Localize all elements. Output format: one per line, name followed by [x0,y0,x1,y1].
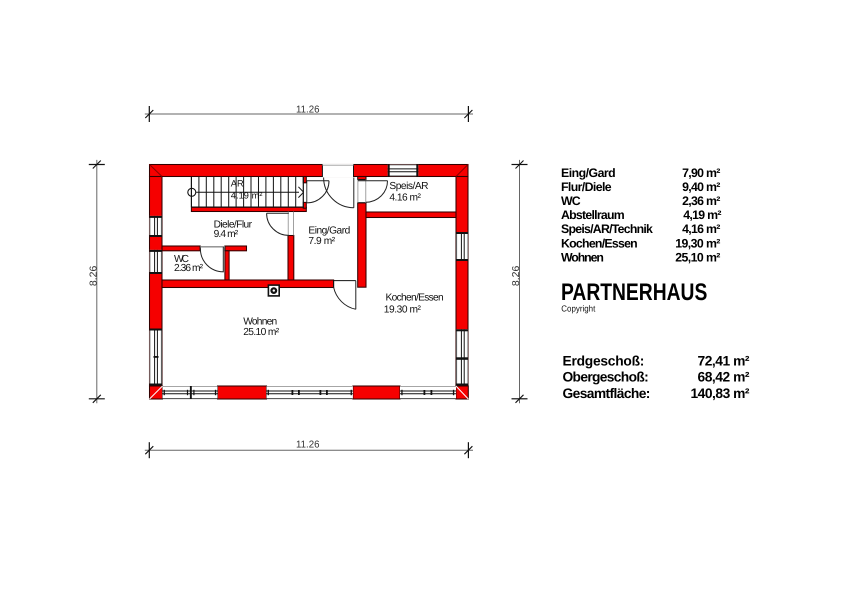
svg-text:Copyright: Copyright [561,303,595,313]
svg-text:72,41 m²: 72,41 m² [698,353,750,368]
svg-text:PARTNERHAUS: PARTNERHAUS [561,279,707,306]
svg-text:11.26: 11.26 [296,104,320,115]
svg-text:4,19 m²: 4,19 m² [683,208,721,222]
svg-text:8.26: 8.26 [88,265,99,286]
svg-text:Kochen/Essen: Kochen/Essen [386,293,444,304]
svg-text:9,40 m²: 9,40 m² [682,180,720,194]
svg-text:2,36 m²: 2,36 m² [682,194,720,208]
svg-text:25,10 m²: 25,10 m² [675,250,720,264]
svg-text:68,42 m²: 68,42 m² [698,370,750,385]
svg-text:WC: WC [561,194,581,208]
svg-text:7,90 m²: 7,90 m² [682,166,720,180]
svg-text:11.26: 11.26 [296,440,320,451]
svg-text:Abstellraum: Abstellraum [561,208,625,222]
svg-text:Kochen/Essen: Kochen/Essen [561,236,638,250]
svg-text:140,83 m²: 140,83 m² [691,386,750,401]
svg-text:Obergeschoß:: Obergeschoß: [563,370,649,385]
svg-text:Eing/Gard: Eing/Gard [308,225,350,236]
svg-text:4.16 m²: 4.16 m² [389,192,421,203]
svg-text:AR: AR [231,179,244,189]
svg-text:4.19 m²: 4.19 m² [231,190,263,200]
svg-text:Flur/Diele: Flur/Diele [561,180,612,194]
svg-text:Speis/AR/Technik: Speis/AR/Technik [561,222,653,236]
svg-text:19.30 m²: 19.30 m² [384,304,422,315]
svg-text:19,30 m²: 19,30 m² [675,236,720,250]
svg-text:7.9 m²: 7.9 m² [308,236,335,247]
svg-text:8.26: 8.26 [511,265,522,286]
svg-text:2.36 m²: 2.36 m² [174,263,204,274]
svg-text:9.4 m²: 9.4 m² [214,229,239,240]
svg-text:Wohnen: Wohnen [561,250,604,264]
svg-text:Speis/AR: Speis/AR [389,181,428,192]
svg-text:Gesamtfläche:: Gesamtfläche: [563,386,651,401]
svg-text:Erdgeschoß:: Erdgeschoß: [563,353,645,368]
svg-text:4,16 m²: 4,16 m² [682,222,720,236]
svg-text:Eing/Gard: Eing/Gard [561,166,616,180]
svg-text:25.10 m²: 25.10 m² [243,327,280,338]
